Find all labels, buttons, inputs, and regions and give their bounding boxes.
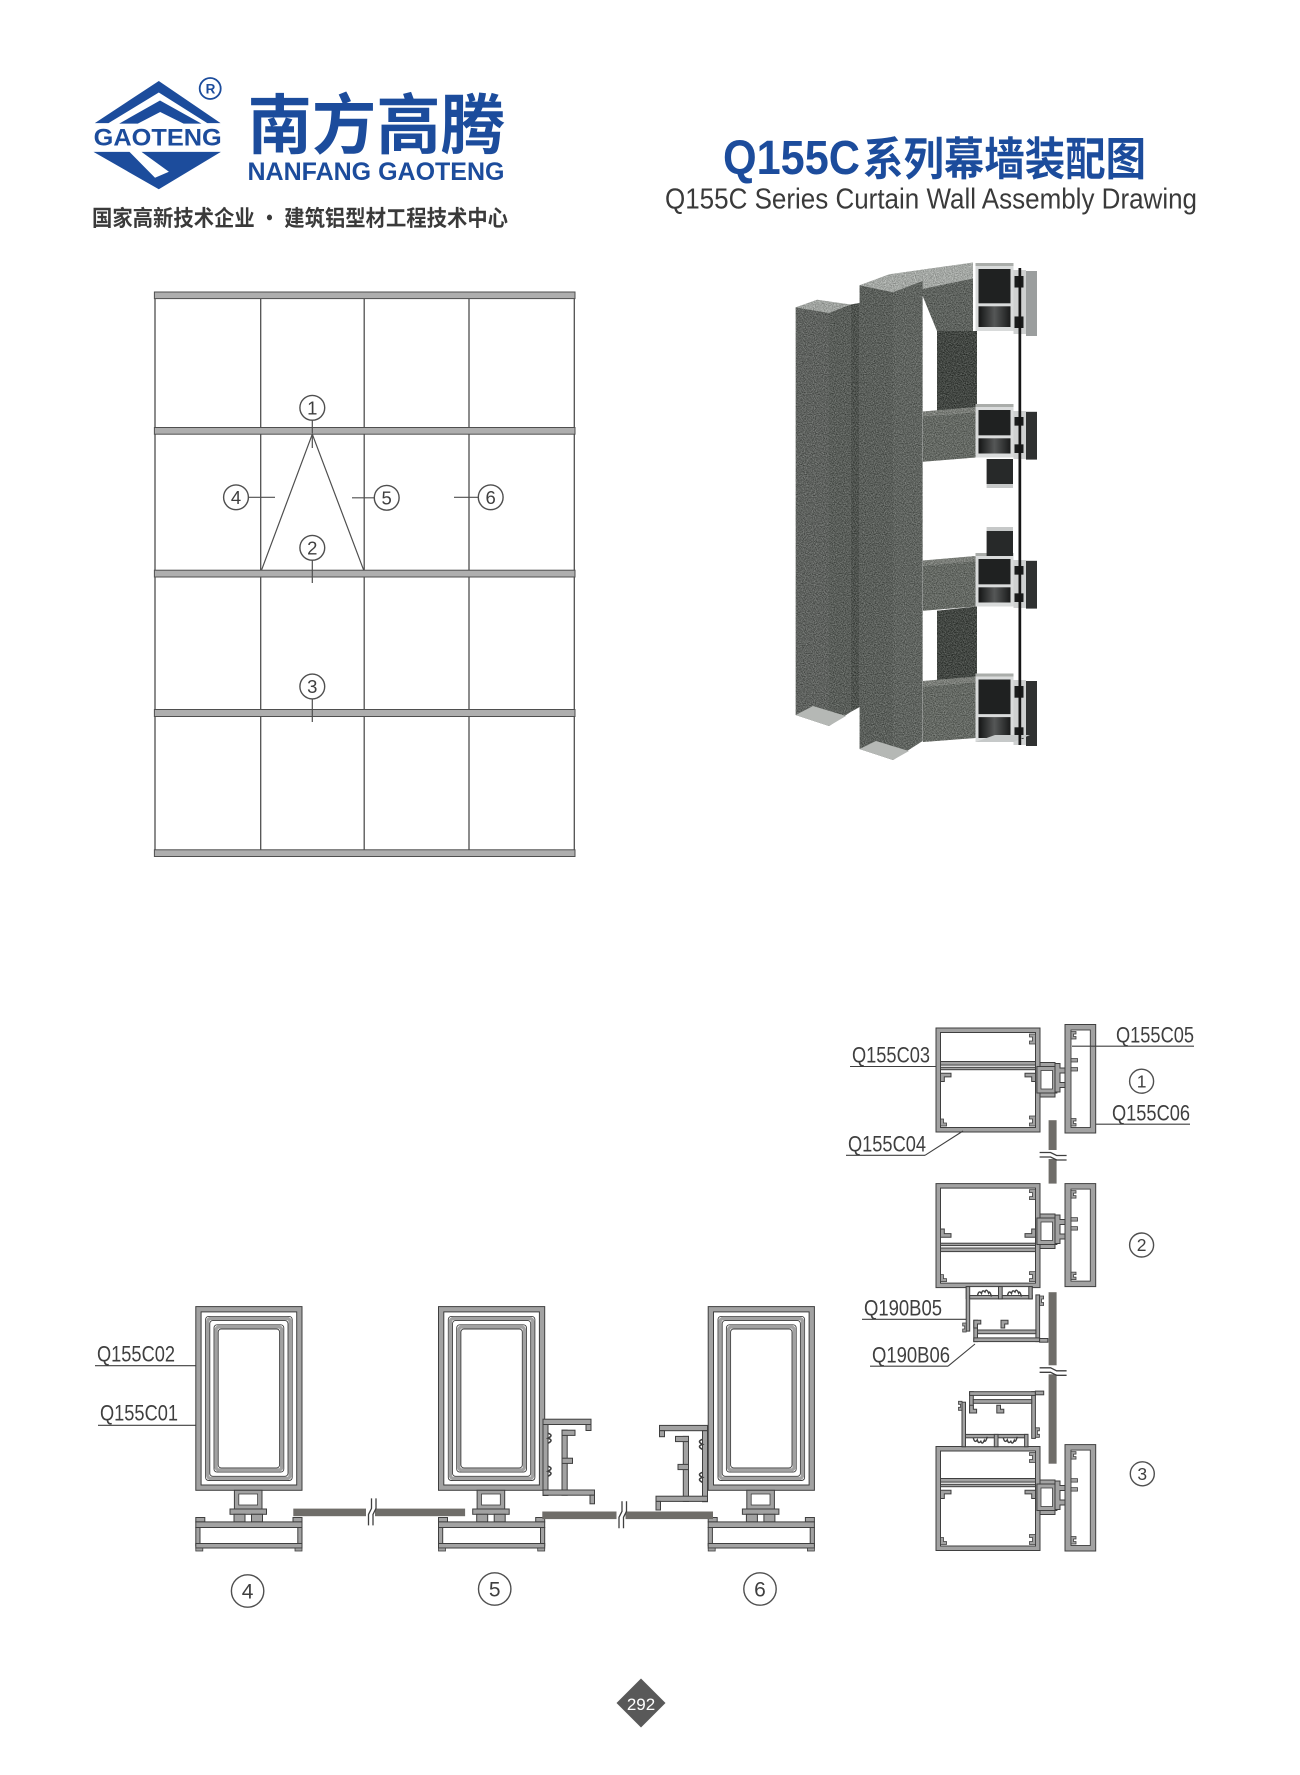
- svg-text:3: 3: [307, 676, 317, 697]
- svg-text:Q155C: Q155C: [723, 132, 860, 185]
- svg-text:1: 1: [1137, 1071, 1147, 1091]
- svg-text:Q155C02: Q155C02: [97, 1342, 175, 1367]
- svg-text:4: 4: [231, 487, 241, 508]
- svg-text:NANFANG GAOTENG: NANFANG GAOTENG: [248, 158, 505, 186]
- svg-text:2: 2: [1137, 1235, 1147, 1255]
- svg-text:Q155C03: Q155C03: [852, 1043, 930, 1068]
- svg-text:5: 5: [382, 487, 392, 508]
- svg-text:1: 1: [307, 397, 317, 418]
- svg-text:4: 4: [242, 1580, 254, 1603]
- svg-text:Q155C Series Curtain Wall Asse: Q155C Series Curtain Wall Assembly Drawi…: [665, 184, 1197, 216]
- svg-text:Q155C05: Q155C05: [1116, 1023, 1194, 1048]
- svg-text:Q155C06: Q155C06: [1112, 1101, 1190, 1126]
- svg-text:2: 2: [307, 537, 317, 558]
- svg-text:Q190B06: Q190B06: [872, 1343, 950, 1368]
- svg-text:6: 6: [754, 1578, 766, 1601]
- svg-text:Q155C04: Q155C04: [848, 1132, 926, 1157]
- svg-text:Q190B05: Q190B05: [864, 1296, 942, 1321]
- svg-text:3: 3: [1137, 1464, 1147, 1484]
- svg-text:292: 292: [627, 1695, 655, 1714]
- svg-text:Q155C01: Q155C01: [100, 1401, 178, 1426]
- svg-text:5: 5: [489, 1578, 501, 1601]
- svg-text:GAOTENG: GAOTENG: [94, 125, 222, 152]
- svg-text:6: 6: [486, 487, 496, 508]
- svg-text:R: R: [206, 82, 216, 97]
